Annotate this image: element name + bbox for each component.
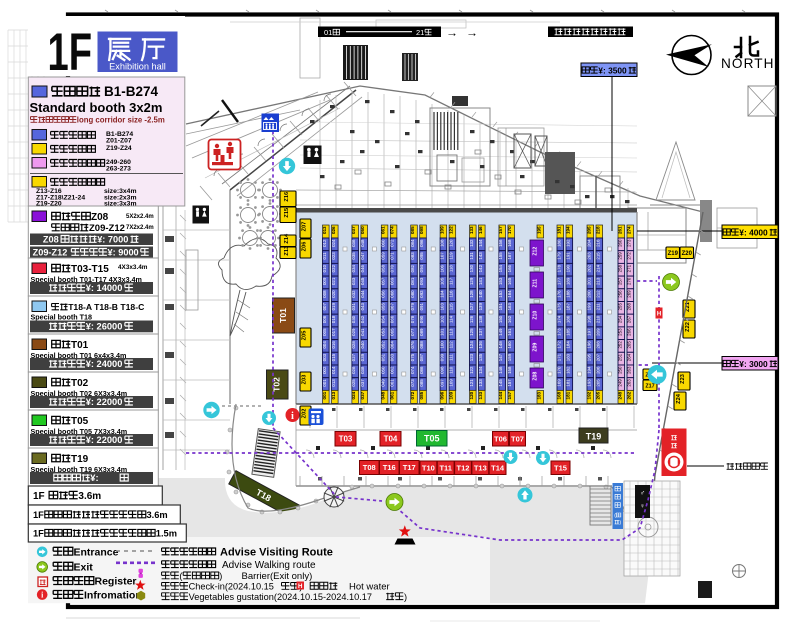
svg-text:H: H xyxy=(657,312,661,318)
svg-text:148: 148 xyxy=(498,341,503,349)
svg-text:1F: 1F xyxy=(48,22,93,82)
svg-text:177: 177 xyxy=(556,277,561,285)
svg-text:013: 013 xyxy=(331,391,336,399)
svg-text:007: 007 xyxy=(322,303,327,311)
svg-text:117: 117 xyxy=(448,277,453,285)
svg-text:131: 131 xyxy=(469,252,474,260)
svg-text:202: 202 xyxy=(586,264,591,272)
svg-text:022: 022 xyxy=(331,264,336,272)
svg-text:267: 267 xyxy=(626,315,631,323)
svg-text:181: 181 xyxy=(556,226,561,234)
svg-text:): ) xyxy=(219,571,222,581)
svg-text:120: 120 xyxy=(448,239,453,247)
svg-text:034: 034 xyxy=(351,264,356,272)
svg-text:121: 121 xyxy=(469,379,474,387)
svg-text:133: 133 xyxy=(478,391,483,399)
svg-text:Z13: Z13 xyxy=(284,246,290,256)
svg-text:Z09-Z12: Z09-Z12 xyxy=(89,223,125,234)
svg-text:091: 091 xyxy=(419,303,424,311)
svg-text:092: 092 xyxy=(419,290,424,298)
svg-text:083: 083 xyxy=(410,252,415,260)
svg-text:213: 213 xyxy=(595,277,600,285)
svg-text:058: 058 xyxy=(381,264,386,272)
svg-text:082: 082 xyxy=(410,264,415,272)
svg-text:105: 105 xyxy=(439,277,444,285)
svg-text:199: 199 xyxy=(586,303,591,311)
svg-text:013: 013 xyxy=(322,226,327,234)
svg-text:096: 096 xyxy=(439,391,444,399)
svg-text:Z23: Z23 xyxy=(680,374,686,384)
svg-text:141: 141 xyxy=(478,277,483,285)
svg-text:T05: T05 xyxy=(424,433,440,443)
svg-text:109: 109 xyxy=(448,379,453,387)
svg-text:109: 109 xyxy=(448,391,453,399)
svg-text:036: 036 xyxy=(351,239,356,247)
svg-text:T16: T16 xyxy=(383,463,396,472)
svg-text:048: 048 xyxy=(360,239,365,247)
svg-text:269: 269 xyxy=(626,290,631,298)
svg-text:104: 104 xyxy=(439,290,444,298)
svg-text:T01: T01 xyxy=(278,308,288,323)
svg-text:Entrance: Entrance xyxy=(74,546,119,558)
svg-text:7X2x2.4m: 7X2x2.4m xyxy=(126,225,154,231)
svg-text:074: 074 xyxy=(390,226,395,234)
svg-text:185: 185 xyxy=(565,328,570,336)
svg-text:012: 012 xyxy=(322,239,327,247)
svg-text:075: 075 xyxy=(410,353,415,361)
svg-text:050: 050 xyxy=(360,226,365,234)
svg-text:Z09-Z12: Z09-Z12 xyxy=(33,248,68,258)
svg-text:154: 154 xyxy=(498,264,503,272)
svg-text:Z19: Z19 xyxy=(668,251,679,257)
svg-text:156: 156 xyxy=(498,239,503,247)
svg-text:125: 125 xyxy=(469,328,474,336)
svg-text:208: 208 xyxy=(595,341,600,349)
svg-text:Vegetables gustation(2024.10.1: Vegetables gustation(2024.10.15-2024.10.… xyxy=(189,592,372,602)
svg-text:053: 053 xyxy=(381,328,386,336)
svg-text:072: 072 xyxy=(410,391,415,399)
svg-text:201: 201 xyxy=(586,277,591,285)
svg-text:059: 059 xyxy=(381,252,386,260)
svg-text:093: 093 xyxy=(419,277,424,285)
svg-text:050: 050 xyxy=(381,366,386,374)
svg-text:Z22: Z22 xyxy=(685,322,691,332)
svg-text:085: 085 xyxy=(419,379,424,387)
svg-text:024: 024 xyxy=(331,239,336,247)
svg-text:5X2x2.4m: 5X2x2.4m xyxy=(126,214,154,220)
svg-text:133: 133 xyxy=(478,379,483,387)
svg-text:155: 155 xyxy=(498,252,503,260)
svg-text:010: 010 xyxy=(322,264,327,272)
svg-text:255: 255 xyxy=(617,303,622,311)
svg-text:192: 192 xyxy=(565,239,570,247)
svg-text:Z12: Z12 xyxy=(533,247,539,256)
svg-text:111: 111 xyxy=(448,354,453,361)
svg-text:207: 207 xyxy=(595,353,600,361)
svg-text:261: 261 xyxy=(617,226,622,234)
svg-text:133: 133 xyxy=(469,226,474,234)
svg-text:001: 001 xyxy=(322,391,327,399)
svg-text:043: 043 xyxy=(360,303,365,311)
svg-text:3.6m: 3.6m xyxy=(147,510,168,520)
svg-text:189: 189 xyxy=(565,277,570,285)
svg-text:Z05: Z05 xyxy=(302,331,308,341)
svg-text:NORTH: NORTH xyxy=(721,56,775,71)
svg-text:001: 001 xyxy=(322,379,327,387)
svg-text:057: 057 xyxy=(381,277,386,285)
svg-text:176: 176 xyxy=(556,290,561,298)
svg-text:Z06: Z06 xyxy=(302,242,308,252)
svg-text:Z16: Z16 xyxy=(284,192,290,202)
svg-text:039: 039 xyxy=(360,353,365,361)
svg-text:061: 061 xyxy=(390,379,395,387)
svg-text:094: 094 xyxy=(419,264,424,272)
svg-text:Z19-Z24: Z19-Z24 xyxy=(106,145,132,152)
svg-text:140: 140 xyxy=(478,290,483,298)
svg-text:263: 263 xyxy=(626,379,631,387)
svg-text:1F: 1F xyxy=(33,529,44,539)
svg-text:028: 028 xyxy=(351,341,356,349)
svg-text:061: 061 xyxy=(381,226,386,234)
svg-text:060: 060 xyxy=(381,239,386,247)
svg-text:142: 142 xyxy=(478,264,483,272)
svg-text:194: 194 xyxy=(565,226,570,234)
svg-text:¥: 3000: ¥: 3000 xyxy=(739,359,768,369)
svg-text:264: 264 xyxy=(626,353,631,361)
svg-text:Z08: Z08 xyxy=(91,212,109,223)
svg-text:013: 013 xyxy=(331,379,336,387)
svg-text:072: 072 xyxy=(390,239,395,247)
svg-text:118: 118 xyxy=(448,265,453,273)
svg-text:127: 127 xyxy=(469,303,474,311)
svg-text:153: 153 xyxy=(498,277,503,285)
svg-text:T03: T03 xyxy=(339,435,353,444)
svg-text:197: 197 xyxy=(586,328,591,336)
svg-text:062: 062 xyxy=(390,366,395,374)
svg-text:249: 249 xyxy=(617,379,622,387)
svg-text:149: 149 xyxy=(498,328,503,336)
svg-text:T19: T19 xyxy=(71,454,89,465)
svg-text:T13: T13 xyxy=(474,463,487,472)
svg-text:041: 041 xyxy=(360,328,365,336)
svg-text:106: 106 xyxy=(439,264,444,272)
svg-text:047: 047 xyxy=(360,252,365,260)
svg-text:263-273: 263-273 xyxy=(106,166,131,173)
svg-text:3.6m: 3.6m xyxy=(78,491,101,502)
svg-text:215: 215 xyxy=(595,252,600,260)
svg-text:157: 157 xyxy=(507,391,512,399)
svg-text:151: 151 xyxy=(498,303,503,311)
svg-text:042: 042 xyxy=(360,315,365,323)
svg-text:162: 162 xyxy=(507,315,512,323)
svg-text:165: 165 xyxy=(507,277,512,285)
svg-text:078: 078 xyxy=(410,315,415,323)
svg-text:191: 191 xyxy=(565,252,570,260)
svg-text:037: 037 xyxy=(351,226,356,234)
svg-text:098: 098 xyxy=(419,226,424,234)
svg-text:061: 061 xyxy=(390,391,395,399)
svg-text:157: 157 xyxy=(507,379,512,387)
svg-text:144: 144 xyxy=(478,239,483,247)
svg-text:120: 120 xyxy=(469,391,474,399)
svg-text:159: 159 xyxy=(507,353,512,361)
svg-text:025: 025 xyxy=(351,379,356,387)
svg-text:035: 035 xyxy=(351,252,356,260)
svg-text:¥: 14000: ¥: 14000 xyxy=(86,283,123,293)
svg-text:T11: T11 xyxy=(439,463,452,472)
svg-text:263: 263 xyxy=(626,366,631,374)
svg-text:long corridor size -2.5m: long corridor size -2.5m xyxy=(77,116,165,125)
svg-text:T14: T14 xyxy=(491,463,505,472)
svg-text:¥: 3500: ¥: 3500 xyxy=(598,65,627,75)
svg-text:002: 002 xyxy=(322,366,327,374)
svg-text:205: 205 xyxy=(586,226,591,234)
svg-text:T03-T15: T03-T15 xyxy=(71,264,109,275)
svg-text:Z07: Z07 xyxy=(302,222,308,232)
svg-text:143: 143 xyxy=(478,252,483,260)
svg-text:076: 076 xyxy=(410,341,415,349)
svg-text:150: 150 xyxy=(498,315,503,323)
svg-text:174: 174 xyxy=(556,315,561,323)
svg-text:114: 114 xyxy=(448,315,453,323)
svg-text:055: 055 xyxy=(381,303,386,311)
svg-text:147: 147 xyxy=(498,353,503,361)
svg-text:098: 098 xyxy=(439,366,444,374)
svg-text:B1-B274: B1-B274 xyxy=(104,84,159,99)
svg-text:206: 206 xyxy=(595,366,600,374)
svg-text:124: 124 xyxy=(469,341,474,349)
svg-text:005: 005 xyxy=(322,328,327,336)
svg-text:260: 260 xyxy=(617,239,622,247)
svg-text:254: 254 xyxy=(617,315,622,323)
svg-text:008: 008 xyxy=(322,290,327,298)
svg-text:166: 166 xyxy=(507,264,512,272)
svg-text:161: 161 xyxy=(507,328,512,336)
svg-text:Z17: Z17 xyxy=(645,383,654,389)
svg-text:Z15: Z15 xyxy=(284,208,290,218)
svg-text:256: 256 xyxy=(617,290,622,298)
svg-text:Register: Register xyxy=(95,576,137,588)
svg-text:♀: ♀ xyxy=(640,503,645,510)
svg-text:037: 037 xyxy=(360,391,365,399)
svg-text:205: 205 xyxy=(595,391,600,399)
svg-text:Exhibition hall: Exhibition hall xyxy=(109,62,166,72)
svg-text:Check-in(2024.10.15: Check-in(2024.10.15 xyxy=(189,582,274,592)
svg-text:T07: T07 xyxy=(511,434,524,443)
svg-text:214: 214 xyxy=(595,264,600,272)
svg-text:157: 157 xyxy=(498,226,503,234)
svg-text:Z03: Z03 xyxy=(302,375,308,385)
svg-text:171: 171 xyxy=(556,353,561,361)
svg-text:270: 270 xyxy=(626,277,631,285)
svg-text:170: 170 xyxy=(556,366,561,374)
svg-text:019: 019 xyxy=(331,303,336,311)
svg-text:160: 160 xyxy=(507,341,512,349)
svg-text:064: 064 xyxy=(390,341,395,349)
svg-text:195: 195 xyxy=(586,353,591,361)
svg-text:¥: 9000: ¥: 9000 xyxy=(108,248,139,258)
svg-text:272: 272 xyxy=(626,252,631,260)
svg-text:074: 074 xyxy=(410,366,415,374)
svg-text:257: 257 xyxy=(617,277,622,285)
svg-text:014: 014 xyxy=(331,366,336,374)
svg-text:169: 169 xyxy=(556,379,561,387)
svg-text:¥: 22000: ¥: 22000 xyxy=(86,397,123,407)
svg-text:109: 109 xyxy=(439,226,444,234)
svg-text:026: 026 xyxy=(331,226,336,234)
svg-text:069: 069 xyxy=(390,277,395,285)
svg-text:026: 026 xyxy=(351,366,356,374)
svg-text:119: 119 xyxy=(448,252,453,260)
svg-text:184: 184 xyxy=(565,341,570,349)
svg-text:021: 021 xyxy=(331,277,336,285)
svg-text:T18-A T18-B T18-C: T18-A T18-B T18-C xyxy=(68,302,144,312)
svg-text:087: 087 xyxy=(419,353,424,361)
svg-text:188: 188 xyxy=(565,290,570,298)
svg-text:051: 051 xyxy=(381,353,386,361)
svg-text:180: 180 xyxy=(556,239,561,247)
svg-text:017: 017 xyxy=(331,328,336,336)
svg-text:040: 040 xyxy=(360,341,365,349)
svg-text:178: 178 xyxy=(556,264,561,272)
svg-text:128: 128 xyxy=(469,290,474,298)
svg-text:056: 056 xyxy=(381,290,386,298)
svg-text:077: 077 xyxy=(410,328,415,336)
svg-text:158: 158 xyxy=(507,366,512,374)
svg-text:192: 192 xyxy=(586,391,591,399)
svg-text:183: 183 xyxy=(536,391,541,399)
svg-text:216: 216 xyxy=(595,239,600,247)
svg-text:152: 152 xyxy=(498,290,503,298)
svg-text:063: 063 xyxy=(390,353,395,361)
svg-text:181: 181 xyxy=(565,379,570,387)
svg-text:096: 096 xyxy=(419,239,424,247)
svg-text:195: 195 xyxy=(536,226,541,234)
svg-text:071: 071 xyxy=(390,252,395,260)
svg-text:4X3x3.4m: 4X3x3.4m xyxy=(118,264,148,271)
svg-text:170: 170 xyxy=(507,226,512,234)
svg-text:T04: T04 xyxy=(384,435,398,444)
svg-text:015: 015 xyxy=(331,353,336,361)
svg-text:116: 116 xyxy=(448,290,453,298)
svg-text:086: 086 xyxy=(419,366,424,374)
svg-text:006: 006 xyxy=(322,315,327,323)
svg-text:Z09: Z09 xyxy=(533,343,539,352)
svg-text:110: 110 xyxy=(448,366,453,374)
svg-text:080: 080 xyxy=(410,290,415,298)
svg-text:Advise Visiting Route: Advise Visiting Route xyxy=(220,546,333,558)
svg-text:084: 084 xyxy=(410,239,415,247)
svg-text:024: 024 xyxy=(351,391,356,399)
svg-text:i: i xyxy=(291,411,294,422)
svg-text:Standard booth 3x2m: Standard booth 3x2m xyxy=(30,100,163,115)
svg-text:011: 011 xyxy=(322,252,327,260)
svg-text:164: 164 xyxy=(507,290,512,298)
svg-text:211: 211 xyxy=(595,303,600,311)
svg-text:048: 048 xyxy=(381,391,386,399)
svg-text:130: 130 xyxy=(469,264,474,272)
svg-text:122: 122 xyxy=(469,366,474,374)
svg-text:095: 095 xyxy=(419,252,424,260)
svg-text:108: 108 xyxy=(439,239,444,247)
svg-text:181: 181 xyxy=(565,391,570,399)
svg-text:032: 032 xyxy=(351,290,356,298)
svg-text:T06: T06 xyxy=(494,434,507,443)
svg-text:172: 172 xyxy=(556,341,561,349)
svg-text:175: 175 xyxy=(556,303,561,311)
svg-text:003: 003 xyxy=(322,353,327,361)
svg-text:163: 163 xyxy=(507,303,512,311)
svg-text:100: 100 xyxy=(439,341,444,349)
svg-text:T02: T02 xyxy=(71,378,89,389)
svg-text:081: 081 xyxy=(410,277,415,285)
svg-text:): ) xyxy=(619,520,621,526)
svg-text:262: 262 xyxy=(626,391,631,399)
svg-text:134: 134 xyxy=(478,366,483,374)
svg-text:T15: T15 xyxy=(554,463,567,472)
svg-text:¥:: ¥: xyxy=(90,473,98,483)
svg-text:102: 102 xyxy=(439,315,444,323)
svg-text:182: 182 xyxy=(565,366,570,374)
svg-text:146: 146 xyxy=(498,366,503,374)
svg-text:H: H xyxy=(298,583,303,590)
svg-text:(: ( xyxy=(179,571,182,581)
svg-text:250: 250 xyxy=(617,366,622,374)
svg-text:203: 203 xyxy=(586,252,591,260)
svg-text:01: 01 xyxy=(324,28,332,37)
svg-text:¥: 7000: ¥: 7000 xyxy=(97,235,128,245)
svg-text:067: 067 xyxy=(390,303,395,311)
svg-text:265: 265 xyxy=(626,341,631,349)
svg-text:132: 132 xyxy=(469,239,474,247)
svg-text:173: 173 xyxy=(556,328,561,336)
svg-text:271: 271 xyxy=(626,264,631,272)
svg-text:209: 209 xyxy=(595,328,600,336)
svg-text:097: 097 xyxy=(439,379,444,387)
svg-text:268: 268 xyxy=(626,303,631,311)
svg-text:146: 146 xyxy=(478,226,483,234)
svg-text:144: 144 xyxy=(498,391,503,399)
svg-text:079: 079 xyxy=(410,303,415,311)
svg-text:204: 204 xyxy=(586,239,591,247)
svg-text:016: 016 xyxy=(331,341,336,349)
svg-text:T17: T17 xyxy=(403,463,416,472)
svg-text:266: 266 xyxy=(626,328,631,336)
svg-text:018: 018 xyxy=(331,315,336,323)
svg-text:020: 020 xyxy=(331,290,336,298)
svg-text:031: 031 xyxy=(351,303,356,311)
svg-text:Special booth T18: Special booth T18 xyxy=(31,313,93,322)
svg-text:Advise Walking route: Advise Walking route xyxy=(222,560,316,571)
svg-text:): ) xyxy=(404,592,407,602)
svg-text:030: 030 xyxy=(351,315,356,323)
svg-text:→: → xyxy=(466,26,478,40)
svg-text:090: 090 xyxy=(419,315,424,323)
svg-text:T05: T05 xyxy=(71,416,89,427)
svg-text:027: 027 xyxy=(351,353,356,361)
svg-text:135: 135 xyxy=(478,353,483,361)
svg-text:049: 049 xyxy=(381,379,386,387)
svg-text:1F: 1F xyxy=(33,491,45,502)
svg-text:044: 044 xyxy=(360,290,365,298)
svg-text:023: 023 xyxy=(331,252,336,260)
svg-text:Z10: Z10 xyxy=(533,311,539,320)
svg-text:103: 103 xyxy=(439,303,444,311)
svg-text:009: 009 xyxy=(322,277,327,285)
svg-text:187: 187 xyxy=(565,303,570,311)
svg-text:136: 136 xyxy=(478,341,483,349)
svg-text:♂: ♂ xyxy=(640,490,645,497)
